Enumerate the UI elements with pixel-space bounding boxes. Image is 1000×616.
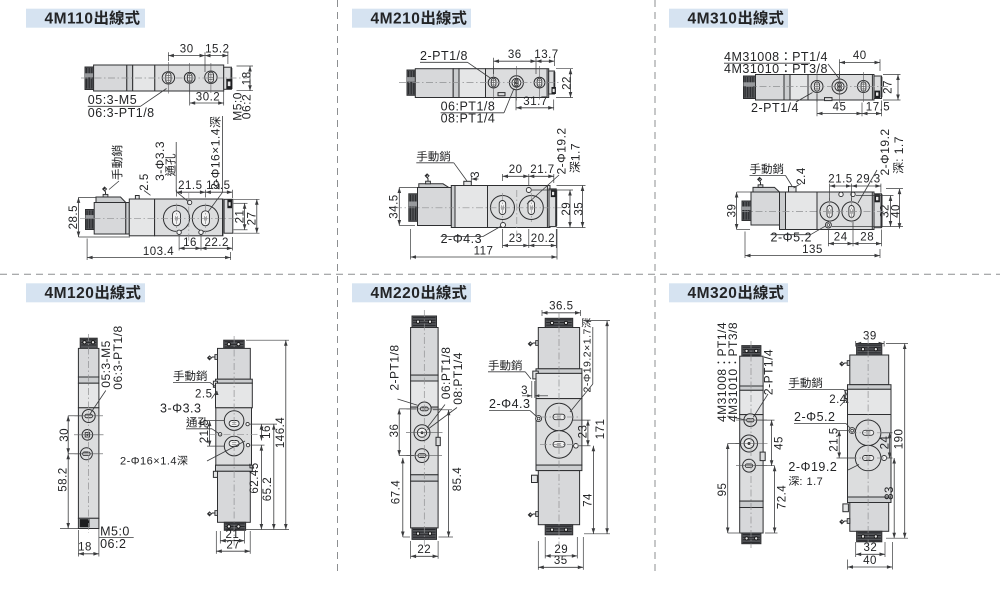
svg-text:45: 45 — [773, 436, 785, 450]
svg-text:20.2: 20.2 — [531, 233, 555, 245]
svg-text:4M310: 4M310 — [688, 11, 738, 28]
svg-text:2-Φ5.2: 2-Φ5.2 — [794, 410, 835, 424]
svg-text:45: 45 — [833, 101, 847, 113]
svg-text:58.2: 58.2 — [58, 467, 70, 491]
svg-text:23: 23 — [578, 425, 590, 439]
svg-text:PT3/8: PT3/8 — [792, 62, 828, 76]
svg-text:06:3-PT1/8: 06:3-PT1/8 — [111, 325, 125, 389]
svg-text:27: 27 — [247, 212, 259, 226]
svg-text:3: 3 — [521, 385, 528, 397]
svg-text:21: 21 — [234, 210, 246, 224]
svg-text:40: 40 — [853, 50, 867, 62]
svg-text:95: 95 — [717, 483, 729, 497]
svg-text:35: 35 — [573, 202, 585, 216]
svg-text:190: 190 — [894, 429, 906, 450]
svg-text:2-Φ16×1.4: 2-Φ16×1.4 — [120, 456, 177, 468]
svg-text:21.5: 21.5 — [828, 174, 852, 186]
svg-text:62.45: 62.45 — [249, 462, 261, 493]
svg-text:08:PT1/4: 08:PT1/4 — [441, 111, 496, 125]
svg-text:135: 135 — [802, 244, 823, 256]
svg-text:28: 28 — [860, 231, 874, 243]
svg-text:27: 27 — [226, 539, 240, 551]
svg-text:05:3-M5: 05:3-M5 — [88, 93, 137, 107]
svg-text:35: 35 — [554, 555, 568, 567]
svg-text:2-Φ19.2: 2-Φ19.2 — [788, 460, 837, 474]
svg-text:4M320: 4M320 — [688, 285, 738, 302]
svg-text:85.4: 85.4 — [452, 467, 464, 491]
svg-text:32: 32 — [864, 542, 878, 554]
svg-text:2-PT1/8: 2-PT1/8 — [387, 344, 401, 390]
svg-text:36.5: 36.5 — [549, 300, 573, 312]
svg-text:15.2: 15.2 — [205, 43, 229, 55]
svg-text:30: 30 — [180, 43, 194, 55]
svg-text:74: 74 — [583, 493, 595, 507]
svg-text:2-PT1/8: 2-PT1/8 — [420, 49, 468, 63]
svg-text:27: 27 — [883, 80, 895, 94]
svg-text:4M31010: 4M31010 — [726, 368, 740, 422]
svg-text:72.4: 72.4 — [777, 485, 789, 509]
svg-text:: 1.7: : 1.7 — [799, 476, 823, 488]
svg-text:40: 40 — [863, 555, 877, 567]
svg-text:3-Φ3.3: 3-Φ3.3 — [160, 402, 201, 416]
svg-text:21.5: 21.5 — [829, 427, 841, 451]
svg-text:67.4: 67.4 — [390, 480, 402, 504]
svg-text:2-PT1/4: 2-PT1/4 — [762, 349, 776, 395]
svg-text:22: 22 — [562, 76, 574, 90]
svg-text:40: 40 — [890, 204, 902, 218]
svg-text:PT3/8: PT3/8 — [726, 322, 740, 357]
svg-text:22: 22 — [417, 544, 431, 556]
svg-text:39: 39 — [863, 331, 877, 343]
svg-text:29: 29 — [554, 544, 568, 556]
svg-text:2-Φ4.3: 2-Φ4.3 — [489, 397, 530, 411]
svg-text:17.5: 17.5 — [866, 101, 890, 113]
svg-text:08:PT1/4: 08:PT1/4 — [451, 352, 465, 405]
svg-text:21.7: 21.7 — [530, 164, 554, 176]
svg-text:36: 36 — [389, 424, 401, 438]
svg-text:18: 18 — [241, 71, 253, 85]
svg-text:30.2: 30.2 — [196, 92, 220, 104]
svg-text:34.5: 34.5 — [389, 194, 401, 218]
svg-text:24: 24 — [834, 231, 848, 243]
svg-text:31.7: 31.7 — [523, 96, 547, 108]
svg-text:20: 20 — [509, 164, 523, 176]
svg-text:29: 29 — [561, 202, 573, 216]
svg-text:2.4: 2.4 — [829, 394, 847, 406]
svg-text:2.5: 2.5 — [195, 389, 213, 401]
svg-text:2-Φ16×1.4: 2-Φ16×1.4 — [209, 128, 223, 190]
svg-text:16: 16 — [183, 237, 197, 249]
svg-text:2-Φ19.2: 2-Φ19.2 — [878, 128, 892, 175]
svg-text:117: 117 — [474, 246, 494, 258]
svg-text:4M220: 4M220 — [371, 285, 421, 302]
svg-text:2-Φ19.2×1.7: 2-Φ19.2×1.7 — [581, 328, 593, 392]
svg-text:65.2: 65.2 — [262, 477, 274, 501]
svg-text:36: 36 — [508, 49, 522, 61]
svg-text:18: 18 — [78, 542, 92, 554]
svg-text:23: 23 — [509, 233, 523, 245]
svg-text:2.5: 2.5 — [139, 173, 151, 191]
svg-text:103.4: 103.4 — [143, 246, 174, 258]
svg-text:28.5: 28.5 — [68, 205, 80, 229]
svg-text:3-Φ3.3: 3-Φ3.3 — [153, 141, 167, 181]
svg-text:2-Φ4.3: 2-Φ4.3 — [441, 232, 482, 246]
svg-text:21.5: 21.5 — [178, 180, 202, 192]
svg-text:06:2: 06:2 — [240, 94, 254, 119]
svg-text:2-Φ19.2: 2-Φ19.2 — [555, 127, 569, 174]
svg-text:171: 171 — [595, 419, 607, 440]
svg-text:83: 83 — [884, 486, 896, 500]
svg-text:146.4: 146.4 — [275, 417, 287, 448]
svg-text:1.7: 1.7 — [568, 143, 582, 161]
svg-text:16: 16 — [261, 425, 273, 439]
svg-text:4M210: 4M210 — [371, 11, 421, 28]
svg-text:24: 24 — [879, 436, 891, 450]
svg-text:4M110: 4M110 — [45, 11, 94, 28]
svg-text:30: 30 — [59, 428, 71, 442]
svg-text:2.4: 2.4 — [796, 167, 808, 185]
svg-text:13.7: 13.7 — [534, 49, 558, 61]
svg-text:: 1.7: : 1.7 — [892, 136, 906, 162]
svg-text:2-PT1/4: 2-PT1/4 — [751, 101, 799, 115]
svg-text:4M31010: 4M31010 — [724, 62, 780, 76]
svg-text:39: 39 — [726, 204, 738, 218]
svg-text:06:2: 06:2 — [100, 537, 126, 551]
svg-text:3: 3 — [470, 171, 482, 178]
svg-text:06:3-PT1/8: 06:3-PT1/8 — [88, 106, 155, 120]
svg-text:4M120: 4M120 — [45, 285, 95, 302]
svg-text:2-Φ5.2: 2-Φ5.2 — [771, 231, 812, 245]
svg-text:22.2: 22.2 — [205, 237, 229, 249]
